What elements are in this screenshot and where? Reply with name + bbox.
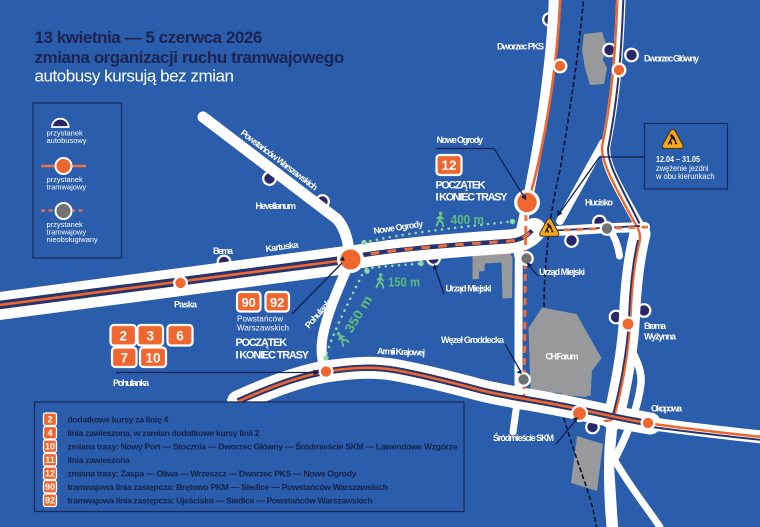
- svg-text:linia zawieszona: linia zawieszona: [68, 455, 131, 465]
- svg-text:7: 7: [120, 351, 128, 366]
- svg-text:Paska: Paska: [174, 300, 198, 310]
- svg-text:10: 10: [145, 351, 160, 366]
- svg-text:13 kwietnia — 5 czerwca 2026: 13 kwietnia — 5 czerwca 2026: [35, 28, 262, 47]
- svg-text:tramwajowa linia zastępcza: Br: tramwajowa linia zastępcza: Brętowo PKM …: [68, 482, 388, 492]
- svg-text:zmiana trasy: Zaspa — Oliwa —: zmiana trasy: Zaspa — Oliwa — Wrzeszcz —…: [68, 468, 357, 478]
- svg-text:10: 10: [45, 441, 55, 451]
- svg-text:CH Forum: CH Forum: [546, 352, 579, 362]
- svg-text:3: 3: [146, 329, 154, 344]
- svg-text:Hucisko: Hucisko: [585, 198, 614, 208]
- svg-text:92: 92: [270, 295, 284, 310]
- svg-text:Warszawskich: Warszawskich: [237, 324, 289, 333]
- svg-text:Pohulanka: Pohulanka: [113, 378, 150, 388]
- svg-text:150 m: 150 m: [388, 275, 420, 290]
- svg-text:Urząd Miejski: Urząd Miejski: [539, 267, 585, 277]
- svg-text:Brama: Brama: [644, 321, 667, 331]
- svg-text:2: 2: [47, 414, 52, 424]
- svg-text:Hevelianum: Hevelianum: [256, 201, 297, 211]
- svg-text:90: 90: [241, 295, 255, 310]
- svg-text:4: 4: [47, 428, 52, 438]
- svg-text:Wyżynna: Wyżynna: [644, 332, 677, 342]
- svg-text:Śródmieście SKM: Śródmieście SKM: [493, 432, 554, 443]
- svg-text:2: 2: [119, 329, 127, 344]
- svg-text:Dworzec Główny: Dworzec Główny: [644, 54, 699, 64]
- svg-text:autobusowy: autobusowy: [47, 136, 87, 145]
- svg-text:tramwajowy: tramwajowy: [47, 183, 87, 192]
- svg-text:Urząd Miejski: Urząd Miejski: [446, 284, 492, 294]
- svg-text:I KONIEC TRASY: I KONIEC TRASY: [436, 192, 509, 204]
- svg-text:zmiana trasy: Nowy Port — Stoc: zmiana trasy: Nowy Port — Stocznia — Dwo…: [68, 440, 458, 451]
- svg-text:tramwajowa linia zastępcza: Uj: tramwajowa linia zastępcza: Ujeścisko — …: [68, 495, 373, 505]
- svg-text:12.04 – 31.05: 12.04 – 31.05: [656, 154, 700, 164]
- svg-text:Węzeł Groddecka: Węzeł Groddecka: [441, 335, 505, 345]
- svg-text:6: 6: [176, 329, 184, 344]
- svg-text:Armii Krajowej: Armii Krajowej: [377, 346, 425, 358]
- svg-text:zmiana organizacji ruchu tramw: zmiana organizacji ruchu tramwajowego: [35, 48, 344, 67]
- svg-text:400 m: 400 m: [451, 212, 485, 227]
- svg-text:w obu kierunkach: w obu kierunkach: [655, 172, 714, 181]
- svg-text:Okopowa: Okopowa: [651, 404, 683, 414]
- svg-text:92: 92: [45, 495, 55, 505]
- svg-text:nieobsługiwany: nieobsługiwany: [47, 235, 99, 244]
- svg-text:linia zawieszona, w zamian dod: linia zawieszona, w zamian dodatkowe kur…: [68, 428, 260, 438]
- svg-text:Bema: Bema: [213, 246, 234, 256]
- svg-text:I KONIEC TRASY: I KONIEC TRASY: [236, 350, 310, 362]
- svg-text:POCZĄTEK: POCZĄTEK: [236, 337, 288, 349]
- svg-text:12: 12: [45, 468, 55, 478]
- svg-text:dodatkowe kursy za linię 4: dodatkowe kursy za linię 4: [68, 414, 169, 424]
- svg-text:Nowe Ogrody: Nowe Ogrody: [437, 135, 484, 145]
- svg-text:11: 11: [45, 455, 55, 465]
- svg-text:12: 12: [441, 158, 456, 173]
- svg-text:Dworzec PKS: Dworzec PKS: [497, 41, 544, 51]
- svg-text:Powstańców: Powstańców: [237, 315, 283, 324]
- svg-text:POCZĄTEK: POCZĄTEK: [436, 180, 486, 192]
- svg-text:90: 90: [45, 482, 55, 492]
- svg-text:autobusy kursują bez zmian: autobusy kursują bez zmian: [35, 67, 234, 86]
